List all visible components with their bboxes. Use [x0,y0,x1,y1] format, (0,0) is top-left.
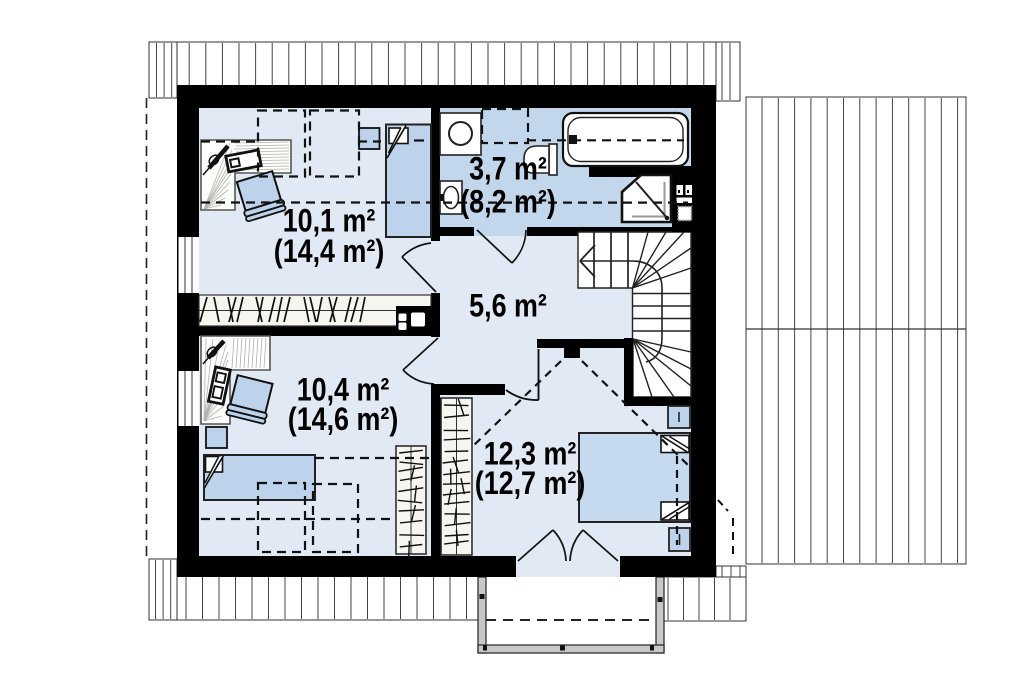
svg-text:(12,7 m²): (12,7 m²) [475,466,586,502]
svg-text:(14,6 m²): (14,6 m²) [288,402,399,438]
svg-text:3,7 m²: 3,7 m² [469,151,547,187]
svg-text:(14,4 m²): (14,4 m²) [274,234,385,270]
svg-text:(8,2 m²): (8,2 m²) [460,184,556,220]
svg-text:5,6 m²: 5,6 m² [469,288,547,324]
